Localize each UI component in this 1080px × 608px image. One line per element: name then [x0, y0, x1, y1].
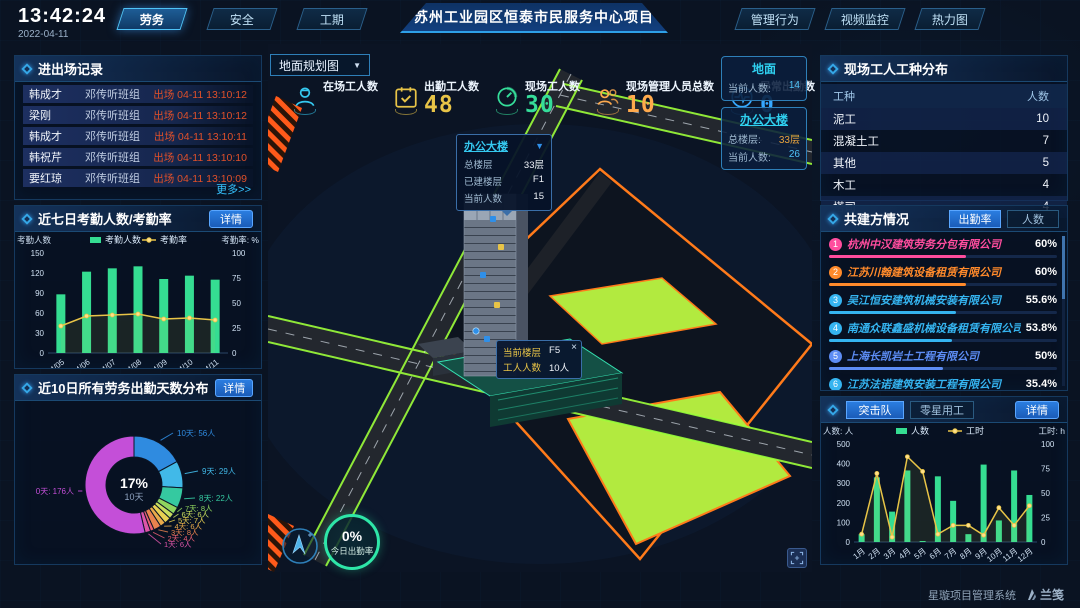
- svg-text:11月: 11月: [1001, 546, 1019, 563]
- svg-text:300: 300: [837, 479, 851, 488]
- worker-count: 7: [1011, 135, 1067, 147]
- popup-value: 33层: [779, 131, 800, 146]
- svg-text:04/10: 04/10: [173, 357, 195, 368]
- svg-text:人数: 人: 人数: 人: [823, 426, 854, 436]
- building-popup: 办公大楼总楼层:33层当前人数:26: [721, 107, 807, 170]
- svg-text:60: 60: [35, 309, 44, 318]
- svg-text:7月: 7月: [943, 546, 958, 561]
- svg-text:5月: 5月: [913, 546, 928, 561]
- worker-type: 混凝土工: [821, 133, 1011, 149]
- gauge-value: 0%: [342, 528, 362, 544]
- clock: 13:42:24 2022-04-11: [18, 5, 106, 40]
- exit-event: 出场 04-11 13:10:12: [153, 108, 247, 123]
- exit-event: 出场 04-11 13:10:11: [154, 129, 247, 144]
- progress-fill: [829, 311, 956, 314]
- today-attendance-gauge: 0% 今日出勤率: [324, 514, 380, 570]
- worker-name: 韩成才: [29, 128, 85, 144]
- close-icon[interactable]: ×: [571, 342, 577, 353]
- rank-badge: 3: [829, 294, 842, 307]
- svg-text:04/07: 04/07: [96, 357, 118, 368]
- svg-text:150: 150: [31, 249, 45, 258]
- svg-text:0天: 176人: 0天: 176人: [36, 487, 74, 496]
- tab-management-behavior[interactable]: 管理行为: [734, 8, 815, 30]
- company-row: 6江苏法诺建筑安装工程有限公司35.4%: [821, 372, 1067, 391]
- panel-title: 共建方情况: [844, 209, 909, 228]
- stat-label: 在场工人数: [323, 78, 378, 94]
- worker-type-row: 木工4: [821, 174, 1067, 196]
- panel-diamond-icon: [827, 404, 838, 415]
- worker-icon: [292, 84, 318, 110]
- entry-exit-record: 韩成才邓传听班组出场 04-11 13:10:11: [23, 127, 253, 145]
- people-icon: [595, 84, 621, 110]
- company-percent: 60%: [1035, 266, 1057, 278]
- tab-labor[interactable]: 劳务: [116, 8, 187, 30]
- company-line: 3吴江恒安建筑机械安装有限公司55.6%: [829, 292, 1057, 308]
- chevron-down-icon[interactable]: ▼: [535, 141, 544, 151]
- tab-safety[interactable]: 安全: [206, 8, 277, 30]
- attendance-detail-button[interactable]: 详情: [209, 210, 253, 228]
- worker-name: 韩祝芹: [29, 149, 85, 165]
- worker-name: 梁刚: [29, 107, 85, 123]
- svg-text:50: 50: [1041, 489, 1050, 498]
- panel-title: 现场工人工种分布: [844, 59, 948, 78]
- company-row: 1杭州中汉建筑劳务分包有限公司60%: [821, 232, 1067, 260]
- calendar-check-icon: [393, 84, 419, 110]
- svg-text:25: 25: [1041, 514, 1050, 523]
- stat-value: 48: [424, 94, 479, 117]
- tab-sporadic-labor[interactable]: 零星用工: [910, 401, 974, 419]
- gauge-label: 今日出勤率: [331, 545, 374, 557]
- exit-event: 出场 04-11 13:10:10: [153, 150, 247, 165]
- panel-diamond-icon: [827, 63, 838, 74]
- popup-label: 总楼层:: [728, 131, 761, 146]
- popup-row: 当前人数:26: [728, 149, 800, 164]
- company-percent: 55.6%: [1026, 294, 1057, 306]
- svg-text:04/08: 04/08: [122, 357, 144, 368]
- popup-label: 当前人数:: [728, 149, 771, 164]
- company-row: 2江苏川翰建筑设备租赁有限公司60%: [821, 260, 1067, 288]
- panel-title: 近10日所有劳务出勤天数分布: [38, 378, 208, 397]
- brand-logo-icon: [1026, 588, 1037, 601]
- svg-text:120: 120: [31, 269, 45, 278]
- company-percent: 60%: [1035, 238, 1057, 250]
- site-stat: 出勤工人数48: [393, 78, 479, 117]
- panel-diamond-icon: [21, 213, 32, 224]
- svg-text:0: 0: [40, 349, 45, 358]
- tab-schedule[interactable]: 工期: [296, 8, 367, 30]
- worker-name: 要红琼: [29, 170, 85, 186]
- tab-video-monitor[interactable]: 视频监控: [824, 8, 905, 30]
- worker-types-header: 工种 人数: [821, 84, 1067, 108]
- popup-title: 办公大楼: [728, 111, 800, 128]
- svg-text:17%: 17%: [120, 475, 149, 491]
- stat-text: 在场工人数: [323, 78, 378, 94]
- stat-text: 现场管理人员总数10: [626, 78, 714, 117]
- dashboard: 13:42:24 2022-04-11 劳务 安全 工期 苏州工业园区恒泰市民服…: [0, 0, 1080, 608]
- svg-text:2月: 2月: [867, 546, 882, 561]
- svg-text:1月: 1月: [852, 546, 867, 561]
- svg-text:400: 400: [837, 460, 851, 469]
- distribution-detail-button[interactable]: 详情: [215, 379, 253, 397]
- map-layer-dropdown[interactable]: 地面规划图 ▼: [270, 54, 370, 76]
- system-name: 星璇项目管理系统: [928, 587, 1016, 603]
- progress-fill: [829, 255, 966, 258]
- building-popup: 地面当前人数:14: [721, 56, 807, 101]
- svg-text:10天: 10天: [124, 492, 143, 502]
- site-stat: 现场工人数30: [494, 78, 580, 117]
- team-detail-button[interactable]: 详情: [1015, 401, 1059, 419]
- company-line: 4南通众联鑫盛机械设备租赁有限公司53.8%: [829, 320, 1057, 336]
- worker-types-panel: 现场工人工种分布 工种 人数 泥工10混凝土工7其他5木工4塔司4: [820, 55, 1068, 201]
- company-line: 6江苏法诺建筑安装工程有限公司35.4%: [829, 376, 1057, 391]
- entry-exit-record: 韩成才邓传听班组出场 04-11 13:10:12: [23, 85, 253, 103]
- company-percent: 50%: [1035, 350, 1057, 362]
- svg-text:75: 75: [232, 274, 241, 283]
- svg-text:0: 0: [1041, 538, 1046, 547]
- svg-text:04/11: 04/11: [200, 357, 221, 368]
- scrollbar-thumb[interactable]: [1062, 236, 1065, 299]
- svg-text:考勤率: %: 考勤率: %: [221, 235, 259, 245]
- site-map-container: 地面规划图 ▼ 在场工人数出勤工人数48现场工人数30现场管理人员总数10异常出…: [268, 44, 812, 572]
- fullscreen-icon[interactable]: [787, 548, 807, 568]
- tab-attendance-rate[interactable]: 出勤率: [949, 210, 1001, 228]
- compass-icon[interactable]: [280, 526, 320, 566]
- team-name: 邓传听班组: [85, 170, 153, 186]
- stat-value: 10: [626, 94, 714, 117]
- popup-value: 14: [789, 80, 800, 95]
- worker-type: 泥工: [821, 111, 1011, 127]
- company-line: 2江苏川翰建筑设备租赁有限公司60%: [829, 264, 1057, 280]
- partners-list: 1杭州中汉建筑劳务分包有限公司60%2江苏川翰建筑设备租赁有限公司60%3吴江恒…: [821, 232, 1067, 391]
- svg-text:75: 75: [1041, 465, 1050, 474]
- worker-type-row: 其他5: [821, 152, 1067, 174]
- svg-text:8天: 22人: 8天: 22人: [199, 494, 233, 503]
- nav-left: 劳务 安全 工期: [120, 8, 364, 30]
- team-name: 邓传听班组: [85, 149, 153, 165]
- stat-value: 30: [525, 94, 580, 117]
- exit-event: 出场 04-11 13:10:12: [153, 87, 247, 102]
- panel-diamond-icon: [21, 382, 32, 393]
- panel-title: 近七日考勤人数/考勤率: [38, 209, 172, 228]
- brand-logo: 兰笺: [1026, 586, 1064, 603]
- partners-panel: 共建方情况 出勤率 人数 1杭州中汉建筑劳务分包有限公司60%2江苏川翰建筑设备…: [820, 205, 1068, 391]
- team-monthly-chart: 人数: 人工时: h人数工时01002003004005000255075100…: [821, 423, 1067, 563]
- worker-count: 10: [1011, 113, 1067, 125]
- company-line: 5上海长凯岩土工程有限公司50%: [829, 348, 1057, 364]
- svg-text:10天: 56人: 10天: 56人: [177, 429, 215, 438]
- attendance-days-panel: 近10日所有劳务出勤天数分布 详情 10天: 56人9天: 29人8天: 22人…: [14, 374, 262, 565]
- company-row: 3吴江恒安建筑机械安装有限公司55.6%: [821, 288, 1067, 316]
- progress-track: [829, 255, 1057, 258]
- svg-text:04/05: 04/05: [45, 357, 67, 368]
- attendance-chart-panel: 近七日考勤人数/考勤率 详情 考勤人数考勤率: %考勤人数考勤率03060901…: [14, 205, 262, 369]
- rank-badge: 4: [829, 322, 842, 335]
- panel-diamond-icon: [21, 63, 32, 74]
- company-percent: 35.4%: [1026, 378, 1057, 390]
- worker-name: 韩成才: [29, 86, 85, 102]
- progress-track: [829, 339, 1057, 342]
- stat-text: 出勤工人数48: [424, 78, 479, 117]
- rank-badge: 5: [829, 350, 842, 363]
- more-link[interactable]: 更多>>: [216, 181, 251, 197]
- svg-text:100: 100: [837, 518, 851, 527]
- chevron-down-icon: ▼: [353, 61, 361, 70]
- company-name: 江苏川翰建筑设备租赁有限公司: [847, 264, 1030, 280]
- nav-right: 管理行为 视频监控 热力图: [738, 8, 982, 30]
- svg-text:100: 100: [1041, 440, 1055, 449]
- popup-row: 当前人数:14: [728, 80, 800, 95]
- rank-badge: 1: [829, 238, 842, 251]
- worker-count: 4: [1011, 179, 1067, 191]
- tab-heatmap[interactable]: 热力图: [914, 8, 985, 30]
- panel-diamond-icon: [827, 213, 838, 224]
- stat-text: 现场工人数30: [525, 78, 580, 117]
- svg-text:100: 100: [232, 249, 246, 258]
- svg-text:8月: 8月: [958, 546, 973, 561]
- svg-text:工时: 工时: [966, 425, 984, 436]
- team-name: 邓传听班组: [85, 128, 154, 144]
- svg-text:考勤人数: 考勤人数: [17, 235, 52, 245]
- gauge-icon: [494, 84, 520, 110]
- project-title: 苏州工业园区恒泰市民服务中心项目: [414, 7, 654, 27]
- entry-exit-records-panel: 进出场记录 韩成才邓传听班组出场 04-11 13:10:12梁刚邓传听班组出场…: [14, 55, 262, 200]
- svg-text:6月: 6月: [928, 546, 943, 561]
- panel-title: 进出场记录: [38, 59, 103, 78]
- progress-track: [829, 367, 1057, 370]
- team-chart-panel: 突击队 零星用工 详情 人数: 人工时: h人数工时01002003004005…: [820, 396, 1068, 565]
- svg-text:04/09: 04/09: [148, 357, 170, 368]
- tab-headcount[interactable]: 人数: [1007, 210, 1059, 228]
- company-percent: 53.8%: [1026, 322, 1057, 334]
- current-time: 13:42:24: [18, 5, 106, 28]
- svg-text:考勤率: 考勤率: [160, 234, 187, 245]
- svg-text:10月: 10月: [985, 546, 1004, 563]
- rank-badge: 2: [829, 266, 842, 279]
- site-stat: 在场工人数: [292, 78, 378, 110]
- popup-value: 26: [789, 149, 800, 164]
- company-name: 吴江恒安建筑机械安装有限公司: [847, 292, 1021, 308]
- worker-type: 其他: [821, 155, 1011, 171]
- popup-row: 总楼层:33层: [728, 131, 800, 146]
- progress-fill: [829, 339, 952, 342]
- building-tooltip: 办公大楼 ▼ 总楼层33层 已建楼层F1 当前人数15: [456, 134, 552, 211]
- team-name: 邓传听班组: [85, 107, 153, 123]
- footer: 星璇项目管理系统 兰笺: [928, 586, 1064, 603]
- svg-text:12月: 12月: [1016, 546, 1035, 563]
- tab-assault-team[interactable]: 突击队: [846, 401, 904, 419]
- svg-text:500: 500: [837, 440, 851, 449]
- svg-text:90: 90: [35, 289, 44, 298]
- popup-label: 当前人数:: [728, 80, 771, 95]
- entry-exit-record: 韩祝芹邓传听班组出场 04-11 13:10:10: [23, 148, 253, 166]
- company-name: 江苏法诺建筑安装工程有限公司: [847, 376, 1021, 391]
- svg-text:30: 30: [35, 329, 44, 338]
- svg-text:0: 0: [232, 349, 237, 358]
- svg-text:25: 25: [232, 324, 241, 333]
- attendance-days-donut-chart: 10天: 56人9天: 29人8天: 22人0天: 176人7天: 8人6天: …: [15, 401, 261, 565]
- worker-type-row: 泥工10: [821, 108, 1067, 130]
- progress-fill: [829, 283, 966, 286]
- scrollbar-track: [1062, 236, 1065, 386]
- progress-fill: [829, 367, 943, 370]
- building-popups: 地面当前人数:14办公大楼总楼层:33层当前人数:26: [721, 56, 807, 170]
- popup-title: 地面: [728, 60, 800, 77]
- attendance-chart: 考勤人数考勤率: %考勤人数考勤率03060901201500255075100…: [15, 232, 261, 368]
- rank-badge: 6: [829, 378, 842, 391]
- company-row: 4南通众联鑫盛机械设备租赁有限公司53.8%: [821, 316, 1067, 344]
- svg-text:3月: 3月: [882, 546, 897, 561]
- worker-count: 5: [1011, 157, 1067, 169]
- top-header: 13:42:24 2022-04-11 劳务 安全 工期 苏州工业园区恒泰市民服…: [0, 0, 1080, 40]
- svg-text:工时: h: 工时: h: [1039, 426, 1066, 436]
- svg-text:04/06: 04/06: [70, 357, 92, 368]
- site-stat: 现场管理人员总数10: [595, 78, 714, 117]
- entry-exit-list: 韩成才邓传听班组出场 04-11 13:10:12梁刚邓传听班组出场 04-11…: [15, 85, 261, 187]
- project-title-banner: 苏州工业园区恒泰市民服务中心项目: [400, 3, 668, 33]
- svg-text:50: 50: [232, 299, 241, 308]
- svg-text:9天: 29人: 9天: 29人: [202, 467, 236, 476]
- progress-track: [829, 311, 1057, 314]
- svg-text:人数: 人数: [911, 425, 929, 436]
- building-tooltip-title[interactable]: 办公大楼: [464, 138, 508, 154]
- team-name: 邓传听班组: [85, 86, 153, 102]
- company-name: 杭州中汉建筑劳务分包有限公司: [847, 236, 1030, 252]
- svg-text:4月: 4月: [897, 546, 912, 561]
- company-row: 5上海长凯岩土工程有限公司50%: [821, 344, 1067, 372]
- company-name: 南通众联鑫盛机械设备租赁有限公司: [847, 320, 1021, 336]
- svg-text:考勤人数: 考勤人数: [105, 234, 141, 245]
- svg-text:1天: 6人: 1天: 6人: [164, 540, 192, 549]
- svg-text:0: 0: [846, 538, 851, 547]
- current-date: 2022-04-11: [18, 29, 106, 40]
- worker-types-list: 泥工10混凝土工7其他5木工4塔司4: [821, 108, 1067, 218]
- progress-track: [829, 283, 1057, 286]
- company-line: 1杭州中汉建筑劳务分包有限公司60%: [829, 236, 1057, 252]
- worker-type-row: 混凝土工7: [821, 130, 1067, 152]
- floor-tooltip: × 当前楼层F5 工人人数10人: [496, 340, 582, 379]
- worker-type: 木工: [821, 177, 1011, 193]
- entry-exit-record: 梁刚邓传听班组出场 04-11 13:10:12: [23, 106, 253, 124]
- company-name: 上海长凯岩土工程有限公司: [847, 348, 1030, 364]
- svg-text:200: 200: [837, 499, 851, 508]
